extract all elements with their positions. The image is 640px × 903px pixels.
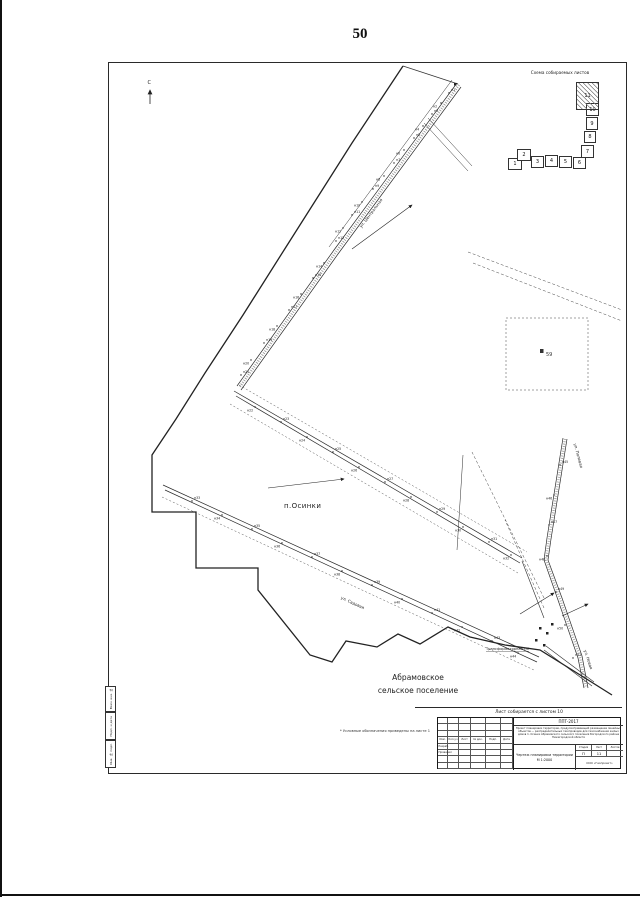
boundary-top-segment (403, 66, 458, 84)
turning-point-label: н45 (562, 460, 568, 464)
turning-point-label: н8 (376, 178, 380, 182)
side-strip-label: Взам. инв. № (109, 688, 113, 709)
turning-point (281, 542, 282, 543)
turning-point-label: н6 (396, 152, 400, 156)
turning-point-label: н3 (434, 109, 438, 113)
turning-point (510, 554, 511, 555)
turning-point (254, 406, 255, 407)
turning-point (384, 481, 385, 482)
turning-point-label: н10 (354, 204, 360, 208)
turning-point-label: н36 (274, 545, 280, 549)
turning-point (564, 624, 565, 625)
turning-point-label: н15 (315, 273, 321, 277)
turning-point (572, 657, 573, 658)
turning-point (440, 102, 441, 103)
turning-point-label: н31 (491, 537, 497, 541)
stamp-cell (448, 763, 459, 769)
turning-point-label: н12 (335, 230, 341, 234)
stamp-cell (438, 763, 448, 769)
turning-point-label: н26 (351, 469, 357, 473)
turning-point (559, 464, 560, 465)
road-cross (457, 455, 463, 550)
organization-name: ООО «Геопроект» (576, 757, 623, 771)
assembly-note: Лист собирается с листом 10 (437, 710, 621, 715)
sheet-title: Чертеж планировки территории М 1:2000 (514, 745, 576, 770)
scheme-sheet-7: 7 (581, 145, 594, 158)
turning-point (410, 496, 411, 497)
road-middle (230, 385, 544, 618)
stamp-cell (459, 763, 471, 769)
turning-point-label: н29 (439, 507, 445, 511)
turning-point (351, 214, 352, 215)
turning-point-label: н28 (403, 499, 409, 503)
turning-point-label: н42 (454, 629, 460, 633)
side-strip-box: Подп. и дата (105, 712, 116, 740)
turning-point (553, 494, 554, 495)
scheme-sheet-5: 5 (559, 156, 572, 168)
turning-point (431, 612, 432, 613)
turning-point (546, 555, 547, 556)
turning-point (372, 188, 373, 189)
turning-point-label: н4 (415, 128, 419, 132)
stamp-cell (471, 763, 486, 769)
stamp-cell (501, 763, 513, 769)
turning-point-label: н49 (558, 587, 564, 591)
turning-point-label: н41 (434, 608, 440, 612)
turning-point-label: н21 (243, 370, 249, 374)
turning-point-label: н46 (546, 497, 552, 501)
title-block-signature-grid: Изм.Кол.учЛист№ док.Подп.ДатаРазраб.Пров… (438, 718, 513, 770)
turning-point-label: н40 (394, 601, 400, 605)
turning-point (221, 514, 222, 515)
turning-point (288, 309, 289, 310)
turning-point-label: н35 (254, 524, 260, 528)
settlement-label: п.Осинки (284, 502, 321, 510)
side-strip-box: Инв. № подл. (105, 740, 116, 768)
scan-edge-bottom (0, 894, 640, 896)
turning-point (263, 342, 264, 343)
turning-point (491, 640, 492, 641)
turning-point-label: н38 (334, 573, 340, 577)
turning-point-label: н44 (510, 655, 516, 659)
north-label: С (148, 80, 152, 86)
turning-point-label: н5 (416, 133, 420, 137)
turning-point (332, 451, 333, 452)
turning-point-label: н25 (335, 447, 341, 451)
turning-point-label: н14 (316, 265, 322, 269)
turning-point-label: н2 (433, 105, 437, 109)
sheet-scheme-title: Схема собираемых листов (505, 70, 615, 75)
turning-point-label: н19 (266, 338, 272, 342)
turning-point (461, 626, 462, 627)
turning-point-label: н9 (375, 184, 379, 188)
scheme-sheet-11: 11 (576, 82, 599, 110)
title-block-right: ППТ-2017 Проект планировки территории, п… (513, 718, 622, 770)
turning-point (276, 325, 277, 326)
turning-point (393, 162, 394, 163)
turning-point (462, 526, 463, 527)
turning-point (403, 149, 404, 150)
page-number: 50 (330, 26, 390, 43)
document-number: ППТ-2017 (514, 718, 623, 726)
street-name-label: ул. Полевая (573, 443, 584, 469)
turning-point (383, 175, 384, 176)
scheme-sheet-4: 4 (545, 155, 558, 167)
turning-point (280, 421, 281, 422)
turning-point-label: н16 (293, 296, 299, 300)
title-block: Изм.Кол.учЛист№ док.Подп.ДатаРазраб.Пров… (437, 717, 621, 769)
turning-point (413, 137, 414, 138)
quarter-marker (540, 349, 544, 353)
turning-point-label: н17 (291, 305, 297, 309)
turning-point-label: н48 (539, 558, 545, 562)
turning-point-label: н32 (503, 557, 509, 561)
turning-point-label: н7 (396, 158, 400, 162)
turning-point (555, 591, 556, 592)
turning-point (306, 436, 307, 437)
turning-point (548, 524, 549, 525)
turning-point-label: н47 (551, 520, 557, 524)
turning-point (448, 92, 449, 93)
region-label-line2: сельское поселение (378, 686, 459, 695)
turning-point (517, 652, 518, 653)
turning-point (240, 374, 241, 375)
turning-point-label: н50 (557, 627, 563, 631)
turning-point (251, 528, 252, 529)
region-label-line1: Абрамовское (392, 673, 444, 682)
turning-point-label: н13 (338, 236, 344, 240)
turning-point (488, 541, 489, 542)
turning-point (335, 240, 336, 241)
side-strip-label: Инв. № подл. (109, 743, 113, 765)
turning-point (401, 598, 402, 599)
scheme-sheet-3: 3 (531, 156, 544, 168)
turning-point-label: н43 (494, 636, 500, 640)
separator-line (415, 707, 622, 708)
side-strip-label: Подп. и дата (109, 716, 113, 736)
boundary-point-labels: н1н2н3н4н5н6н7н8н9н10н11н12н13н14н15н16н… (191, 88, 581, 659)
turning-point (361, 201, 362, 202)
turning-point (436, 511, 437, 512)
scheme-sheet-8: 8 (584, 131, 596, 143)
scheme-sheet-2: 2 (517, 149, 531, 161)
turning-point (341, 570, 342, 571)
scanned-page: 50 (0, 0, 640, 903)
turning-point (358, 466, 359, 467)
turning-point-label: н27 (387, 477, 393, 481)
turning-point-label: н23 (283, 417, 289, 421)
turning-point-label: н34 (214, 517, 220, 521)
turning-point (250, 359, 251, 360)
turning-point-label: н22 (247, 409, 253, 413)
territory-plan-map: 59 С п.Осинки Абрамовское сельское посел… (108, 62, 625, 772)
street-name-label: ул. Новая (583, 649, 594, 670)
turning-point-label: н1 (451, 88, 455, 92)
turning-point-label: н20 (243, 362, 249, 366)
quarter-number-label: 59 (546, 352, 552, 358)
turning-point-label: н18 (269, 328, 275, 332)
project-description: Проект планировки территории, предусматр… (514, 726, 623, 745)
turning-point (422, 125, 423, 126)
scheme-sheet-6: 6 (573, 157, 586, 169)
turning-point-label: н30 (455, 529, 461, 533)
turning-point (191, 500, 192, 501)
scheme-sheet-9: 9 (586, 117, 598, 130)
stamp-cell (486, 763, 501, 769)
transformer-label: Трансформаторная ПС (485, 647, 530, 651)
turning-point (431, 113, 432, 114)
turning-point (300, 293, 301, 294)
north-arrow-icon: С (148, 80, 152, 104)
turning-point-label: н39 (374, 580, 380, 584)
turning-point (311, 556, 312, 557)
turning-point-label: н11 (354, 210, 360, 214)
turning-point-label: н37 (314, 552, 320, 556)
turning-point (371, 584, 372, 585)
road-northeast (237, 80, 472, 390)
street-name-labels: ул. Центральнаяул. Садоваяул. Полеваяул.… (340, 197, 594, 670)
turning-point-label: н51 (575, 653, 581, 657)
turning-point (312, 277, 313, 278)
turning-point (342, 227, 343, 228)
turning-point-label: н24 (299, 439, 305, 443)
turning-point (323, 262, 324, 263)
side-strip-box: Взам. инв. № (105, 686, 116, 712)
scan-edge-left (0, 0, 2, 897)
turning-point-label: н33 (194, 496, 200, 500)
street-name-label: ул. Садовая (340, 595, 365, 610)
